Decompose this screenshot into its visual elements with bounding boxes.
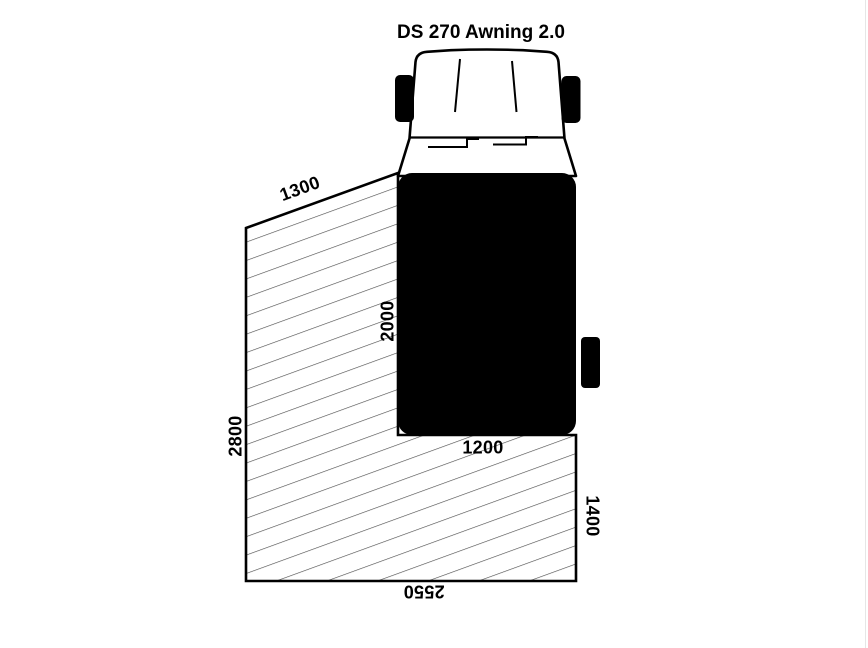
vehicle-mirror-left bbox=[395, 75, 414, 122]
dimension-label-awning-right: 1400 bbox=[582, 495, 603, 536]
diagram-canvas: DS 270 Awning 2.0 1300 2000 2800 1200 14… bbox=[0, 0, 868, 648]
dimension-label-vehicle-side: 2000 bbox=[378, 300, 399, 341]
vehicle-roof bbox=[398, 173, 576, 435]
dimension-label-awning-rear: 2550 bbox=[403, 581, 444, 602]
awning-diagram bbox=[0, 0, 868, 648]
awning-mount-bracket bbox=[581, 337, 600, 388]
vehicle-mirror-right bbox=[562, 76, 581, 123]
page-right-border bbox=[865, 0, 866, 648]
dimension-label-awning-left: 2800 bbox=[226, 415, 247, 456]
vehicle-cab bbox=[398, 50, 576, 177]
dimension-label-vehicle-rear: 1200 bbox=[462, 438, 503, 459]
page-title: DS 270 Awning 2.0 bbox=[397, 22, 565, 44]
